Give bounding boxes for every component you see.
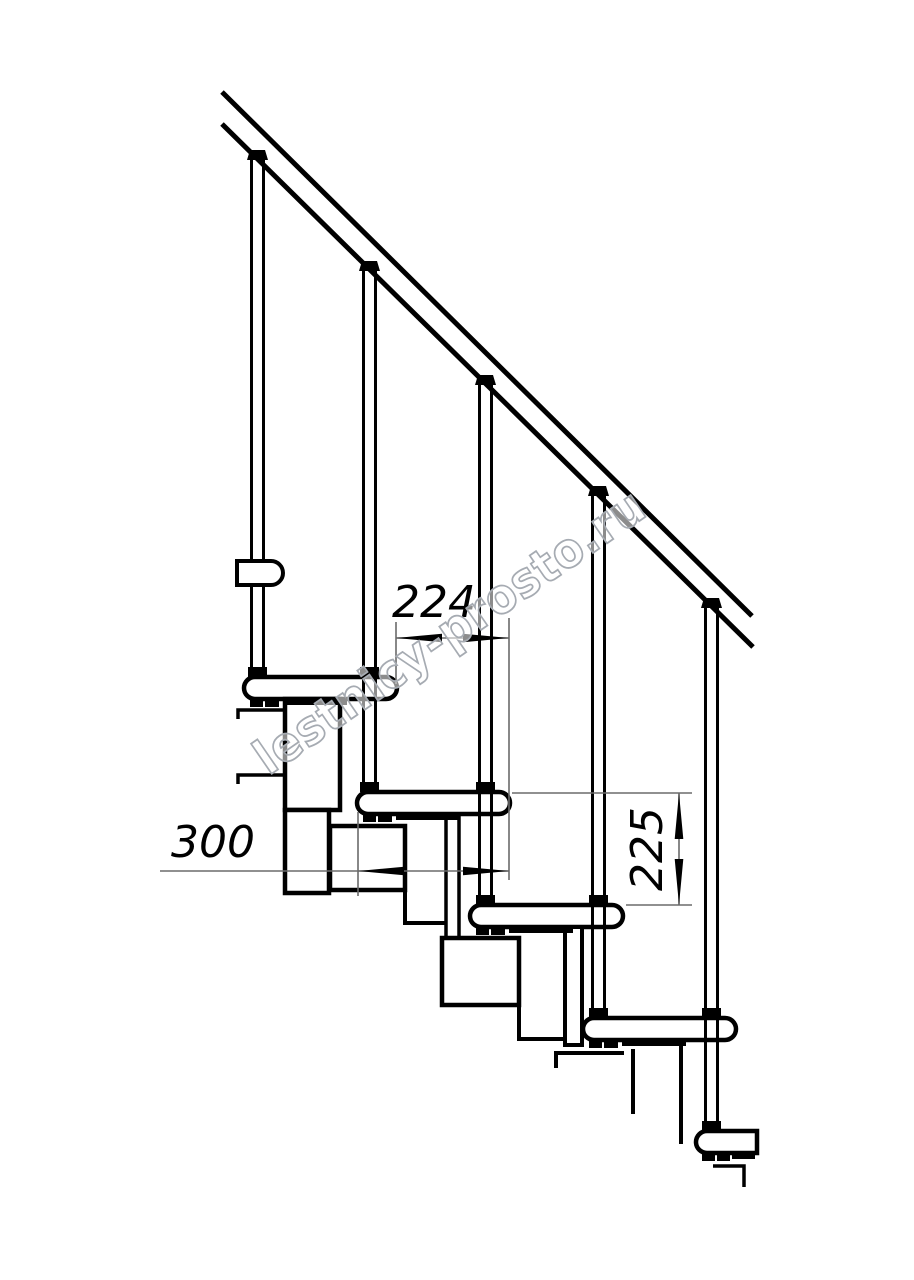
pad [702,1153,715,1161]
arrow-down [675,859,684,905]
tread-4 [583,1018,736,1040]
wall-rail-bracket [237,561,283,585]
tread-2 [357,792,510,814]
pad [589,1040,602,1048]
base-fitting [702,1121,721,1131]
pass-through-fitting [589,895,608,905]
pass-through-fitting [702,1008,721,1018]
module-link-2 [405,890,447,923]
base-fitting [476,895,495,905]
base-fitting [360,782,379,792]
handrail-top-line [222,92,752,616]
module-box-3 [442,938,519,1005]
pad [250,699,263,707]
pass-through-fitting [476,782,495,792]
rail-connector [701,598,722,608]
module-tube-2 [446,814,459,938]
rail-connector [475,375,496,385]
module-link-3 [519,1005,566,1039]
module-tube-3 [565,927,582,1045]
module-tube-1-lower [285,810,329,893]
arrow-right [463,867,509,876]
pad [378,814,392,822]
module-box-2 [330,826,405,890]
drawing-page: 224 300 225 lestnicy-prosto.ru [0,0,914,1280]
pad [476,927,489,935]
flange [622,1040,686,1046]
rail-connector [247,150,268,160]
module-link-5-partial [713,1166,744,1187]
baluster-5 [701,598,722,1131]
pad [491,927,505,935]
arrow-up [675,793,684,839]
watermark-text: lestnicy-prosto.ru [244,478,656,786]
tread-5-partial [696,1131,757,1153]
handrail-bottom-line [222,124,753,647]
module-box-4-partial [556,1053,624,1068]
dimension-label-300: 300 [171,817,255,868]
rail-connector [359,261,380,271]
base-fitting [248,667,267,677]
baluster-1 [247,150,268,677]
handrail [222,92,753,647]
dimension-label-225: 225 [622,807,673,891]
flange [396,814,460,820]
dimension-225: 225 [512,793,692,905]
staircase-technical-drawing: 224 300 225 lestnicy-prosto.ru [0,0,914,1280]
pad [717,1153,730,1161]
pad [604,1040,618,1048]
pad [363,814,376,822]
flange [509,927,573,933]
pad [265,699,279,707]
tread-3 [470,905,623,927]
flange [732,1153,755,1159]
base-fitting [589,1008,608,1018]
